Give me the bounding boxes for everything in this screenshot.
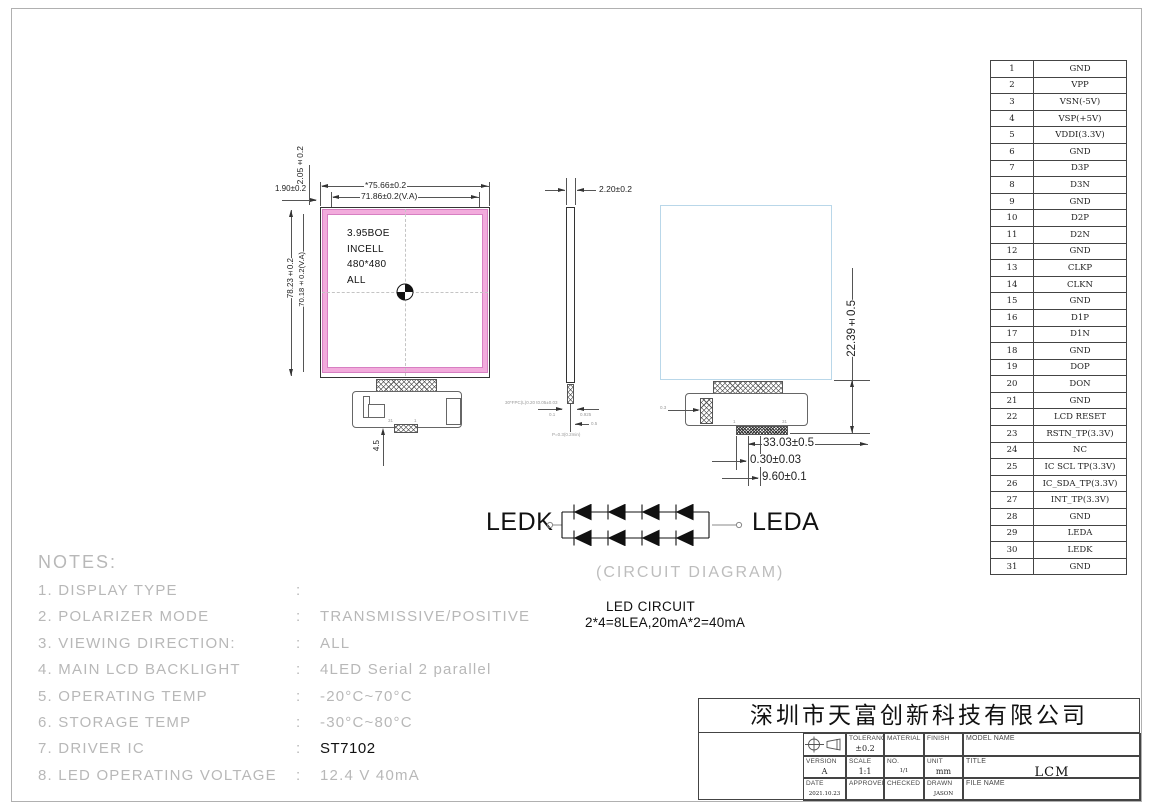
pin-name: GND bbox=[1034, 193, 1127, 210]
pin-row: 24NC bbox=[991, 442, 1127, 459]
note-label: POLARIZER MODE bbox=[58, 608, 209, 625]
pin-name: INT_TP(3.3V) bbox=[1034, 492, 1127, 509]
dim-small: 0.1 bbox=[549, 412, 555, 417]
note-number: 3. bbox=[38, 635, 53, 652]
ext-line bbox=[575, 178, 576, 205]
side-view-outline bbox=[566, 207, 575, 383]
pin-number: 18 bbox=[991, 343, 1034, 360]
note-label: DISPLAY TYPE bbox=[58, 582, 177, 599]
pin-name: LCD RESET bbox=[1034, 409, 1127, 426]
pin-number: 31 bbox=[991, 558, 1034, 575]
dim-outer-width: *75.66±0.2 bbox=[364, 181, 407, 191]
dim-arrow bbox=[752, 476, 759, 480]
no-value: 1/1 bbox=[885, 765, 923, 777]
pin-name: CLKP bbox=[1034, 260, 1127, 277]
pin-number: 2 bbox=[991, 77, 1034, 94]
note-number: 6. bbox=[38, 714, 53, 731]
fpc-pitch-caption: P=0.3(0.2min) bbox=[552, 432, 580, 437]
dim-thickness: 2.20±0.2 bbox=[598, 185, 633, 195]
pin-number: 9 bbox=[991, 193, 1034, 210]
note-number: 4. bbox=[38, 661, 53, 678]
note-value: 4LED Serial 2 parallel bbox=[320, 657, 491, 683]
pin-name: D1P bbox=[1034, 309, 1127, 326]
projection-symbol-icon bbox=[804, 734, 845, 755]
pin-row: 21GND bbox=[991, 392, 1127, 409]
pin-row: 26IC_SDA_TP(3.3V) bbox=[991, 475, 1127, 492]
pin-name: VSN(-5V) bbox=[1034, 94, 1127, 111]
pin-name: D2P bbox=[1034, 210, 1127, 227]
pin-number: 7 bbox=[991, 160, 1034, 177]
note-value: ST7102 bbox=[320, 736, 376, 762]
dim-side-margin: 1.90±0.2 bbox=[274, 184, 307, 193]
notes-heading: NOTES: bbox=[38, 552, 117, 573]
pin-row: 16D1P bbox=[991, 309, 1127, 326]
pin-number: 22 bbox=[991, 409, 1034, 426]
pin-name: D3N bbox=[1034, 177, 1127, 194]
dim-arrow bbox=[289, 369, 293, 376]
dim-conn-width: 9.60±0.1 bbox=[761, 471, 808, 484]
note-value: -20°C~70°C bbox=[320, 684, 413, 710]
pin-row: 22LCD RESET bbox=[991, 409, 1127, 426]
dim-pitch: 0.30±0.03 bbox=[749, 454, 802, 467]
pin-number: 12 bbox=[991, 243, 1034, 260]
note-number: 8. bbox=[38, 767, 53, 784]
pin-row: 2VPP bbox=[991, 77, 1127, 94]
dim-arrow bbox=[850, 426, 854, 433]
pin-number: 30 bbox=[991, 542, 1034, 559]
pin-number: 20 bbox=[991, 376, 1034, 393]
pin-row: 12GND bbox=[991, 243, 1127, 260]
note-item: 3. VIEWING DIRECTION: : ALL bbox=[38, 631, 598, 657]
note-number: 2. bbox=[38, 608, 53, 625]
dim-arrow bbox=[740, 459, 747, 463]
note-item: 4. MAIN LCD BACKLIGHT : 4LED Serial 2 pa… bbox=[38, 657, 598, 683]
pin-name: NC bbox=[1034, 442, 1127, 459]
drawn-value: JASON bbox=[925, 787, 962, 800]
pin-name: LEDK bbox=[1034, 542, 1127, 559]
note-item: 6. STORAGE TEMP : -30°C~80°C bbox=[38, 710, 598, 736]
dim-arrow bbox=[321, 184, 328, 188]
pin-number: 14 bbox=[991, 276, 1034, 293]
note-colon: : bbox=[296, 631, 301, 657]
model-name-cell: MODEL NAME bbox=[963, 733, 1141, 756]
dim-arrow bbox=[556, 407, 563, 411]
led-circuit-diagram bbox=[546, 504, 746, 546]
ledk-label: LEDK bbox=[486, 508, 553, 537]
note-item: 5. OPERATING TEMP : -20°C~70°C bbox=[38, 684, 598, 710]
title-block: 深圳市天富创新科技有限公司 TOLERANCE ±0.2 MATERIAL FI… bbox=[698, 698, 1140, 800]
date-value: 2021.10.23 bbox=[804, 787, 845, 800]
pin-row: 10D2P bbox=[991, 210, 1127, 227]
dim-arrow bbox=[850, 380, 854, 387]
ext-line bbox=[736, 436, 737, 470]
note-value: TRANSMISSIVE/POSITIVE bbox=[320, 604, 530, 630]
pin-name: D1N bbox=[1034, 326, 1127, 343]
pin-name: GND bbox=[1034, 293, 1127, 310]
pin-name: GND bbox=[1034, 392, 1127, 409]
version-label: VERSION bbox=[804, 757, 845, 765]
pin-number: 10 bbox=[991, 210, 1034, 227]
pin-name: D2N bbox=[1034, 226, 1127, 243]
dim-arrow bbox=[471, 195, 478, 199]
scale-label: SCALE bbox=[847, 757, 883, 765]
title-label: TITLE bbox=[964, 757, 1140, 765]
title-cell: TITLE LCM bbox=[963, 756, 1141, 778]
projection-symbol-cell bbox=[803, 733, 846, 756]
note-item: 8. LED OPERATING VOLTAGE : 12.4 V 40mA bbox=[38, 763, 598, 789]
ext-line bbox=[489, 182, 490, 206]
note-colon: : bbox=[296, 736, 301, 762]
dim-fpc-drop: 22.39±0.5 bbox=[845, 300, 860, 357]
dim-va-width: 71.86±0.2(V.A) bbox=[360, 192, 418, 202]
unit-label: UNIT bbox=[925, 757, 962, 765]
checked-cell: CHECKED bbox=[884, 778, 924, 801]
scale-cell: SCALE 1:1 bbox=[846, 756, 884, 778]
pin-row: 23RSTN_TP(3.3V) bbox=[991, 426, 1127, 443]
pin-number: 3 bbox=[991, 94, 1034, 111]
note-label: LED OPERATING VOLTAGE bbox=[58, 767, 277, 784]
note-item: 7. DRIVER IC : ST7102 bbox=[38, 736, 598, 762]
panel-spec-line: 480*480 bbox=[347, 257, 390, 273]
pin-number: 25 bbox=[991, 459, 1034, 476]
fpc-component bbox=[368, 404, 385, 418]
pin-row: 17D1N bbox=[991, 326, 1127, 343]
finish-cell: FINISH bbox=[924, 733, 963, 756]
dim-va-height: 70.18±0.2(V.A) bbox=[297, 252, 308, 307]
pin-number: 29 bbox=[991, 525, 1034, 542]
pin-row: 15GND bbox=[991, 293, 1127, 310]
note-item: 1. DISPLAY TYPE : bbox=[38, 578, 598, 604]
dim-top-margin: 2.05±0.2 bbox=[295, 146, 307, 184]
note-label: DRIVER IC bbox=[58, 740, 145, 757]
back-connector bbox=[736, 426, 788, 435]
pin-row: 6GND bbox=[991, 143, 1127, 160]
dim-arrow bbox=[577, 407, 584, 411]
pin-mark: 1 bbox=[414, 418, 417, 423]
pin-name: CLKN bbox=[1034, 276, 1127, 293]
pin-number: 28 bbox=[991, 509, 1034, 526]
led-circuit-title: LED CIRCUIT bbox=[606, 599, 695, 614]
dim-arrow bbox=[481, 184, 488, 188]
led-circuit-spec: 2*4=8LEA,20mA*2=40mA bbox=[585, 615, 745, 630]
pin-number: 21 bbox=[991, 392, 1034, 409]
note-value: 12.4 V 40mA bbox=[320, 763, 420, 789]
drawing-sheet: 3.95BOE INCELL 480*480 ALL 31 1 *75.66±0… bbox=[0, 0, 1152, 810]
pin-row: 3VSN(-5V) bbox=[991, 94, 1127, 111]
note-number: 1. bbox=[38, 582, 53, 599]
dim-outer-height: 78.23±0.2 bbox=[285, 258, 296, 298]
panel-spec-line: INCELL bbox=[347, 242, 390, 258]
pin-name: GND bbox=[1034, 143, 1127, 160]
dim-arrow bbox=[310, 198, 317, 202]
dim-fpc-offset: 4.5 bbox=[371, 440, 382, 451]
tolerance-label: TOLERANCE bbox=[847, 734, 883, 742]
pin-name: VPP bbox=[1034, 77, 1127, 94]
dim-fpc-width: 33.03±0.5 bbox=[762, 437, 815, 450]
pin-name: LEDA bbox=[1034, 525, 1127, 542]
pin-name: IC_SDA_TP(3.3V) bbox=[1034, 475, 1127, 492]
title-value: LCM bbox=[964, 765, 1140, 778]
panel-spec-line: 3.95BOE bbox=[347, 226, 390, 242]
back-stiffener bbox=[713, 381, 783, 394]
material-label: MATERIAL bbox=[885, 734, 923, 742]
note-label: OPERATING TEMP bbox=[58, 688, 208, 705]
file-name-label: FILE NAME bbox=[964, 779, 1140, 787]
pin-row: 29LEDA bbox=[991, 525, 1127, 542]
file-name-cell: FILE NAME bbox=[963, 778, 1141, 801]
ext-line bbox=[479, 192, 480, 207]
pin-number: 27 bbox=[991, 492, 1034, 509]
back-view-outline bbox=[660, 205, 832, 380]
version-value: A bbox=[804, 765, 845, 777]
pin-name: DOP bbox=[1034, 359, 1127, 376]
note-value: ALL bbox=[320, 631, 350, 657]
ext-line bbox=[790, 433, 870, 434]
dim-arrow bbox=[575, 422, 582, 426]
note-colon: : bbox=[296, 578, 301, 604]
note-colon: : bbox=[296, 657, 301, 683]
pin-table: 1GND2VPP3VSN(-5V)4VSP(+5V)5VDDI(3.3V)6GN… bbox=[990, 60, 1127, 575]
note-colon: : bbox=[296, 604, 301, 630]
pin-number: 8 bbox=[991, 177, 1034, 194]
side-fpc-fold bbox=[567, 384, 574, 404]
fpc-stiffener bbox=[376, 379, 437, 392]
pin-row: 1GND bbox=[991, 61, 1127, 78]
center-mark-icon bbox=[396, 283, 414, 301]
pin-row: 18GND bbox=[991, 343, 1127, 360]
pin-name: VDDI(3.3V) bbox=[1034, 127, 1127, 144]
checked-label: CHECKED bbox=[885, 779, 923, 787]
note-colon: : bbox=[296, 763, 301, 789]
pin-row: 14CLKN bbox=[991, 276, 1127, 293]
pin-row: 19DOP bbox=[991, 359, 1127, 376]
dim-arrow bbox=[748, 442, 755, 446]
pin-name: GND bbox=[1034, 243, 1127, 260]
leda-label: LEDA bbox=[752, 508, 819, 537]
unit-value: mm bbox=[925, 765, 962, 777]
version-cell: VERSION A bbox=[803, 756, 846, 778]
dim-small: 0.5 bbox=[591, 421, 597, 426]
note-value: -30°C~80°C bbox=[320, 710, 413, 736]
pin-name: GND bbox=[1034, 61, 1127, 78]
pin-mark: 1 bbox=[733, 419, 736, 424]
pin-row: 5VDDI(3.3V) bbox=[991, 127, 1127, 144]
note-number: 7. bbox=[38, 740, 53, 757]
pin-number: 15 bbox=[991, 293, 1034, 310]
no-label: NO. bbox=[885, 757, 923, 765]
pin-name: VSP(+5V) bbox=[1034, 110, 1127, 127]
date-cell: DATE 2021.10.23 bbox=[803, 778, 846, 801]
drawn-label: DRAWN bbox=[925, 779, 962, 787]
dim-arrow bbox=[381, 428, 385, 435]
pin-number: 4 bbox=[991, 110, 1034, 127]
notes-list: 1. DISPLAY TYPE : 2. POLARIZER MODE : TR… bbox=[38, 578, 598, 789]
pin-row: 20DON bbox=[991, 376, 1127, 393]
pin-row: 7D3P bbox=[991, 160, 1127, 177]
pin-name: GND bbox=[1034, 509, 1127, 526]
unit-cell: UNIT mm bbox=[924, 756, 963, 778]
model-name-label: MODEL NAME bbox=[964, 734, 1140, 742]
pin-row: 27INT_TP(3.3V) bbox=[991, 492, 1127, 509]
dim-arrow bbox=[693, 408, 700, 412]
pin-number: 23 bbox=[991, 426, 1034, 443]
note-label: VIEWING DIRECTION: bbox=[58, 635, 235, 652]
company-name: 深圳市天富创新科技有限公司 bbox=[699, 699, 1139, 733]
tolerance-cell: TOLERANCE ±0.2 bbox=[846, 733, 884, 756]
pin-row: 13CLKP bbox=[991, 260, 1127, 277]
pin-number: 1 bbox=[991, 61, 1034, 78]
pin-row: 25IC SCL TP(3.3V) bbox=[991, 459, 1127, 476]
drawn-cell: DRAWN JASON bbox=[924, 778, 963, 801]
pin-name: DON bbox=[1034, 376, 1127, 393]
pin-row: 30LEDK bbox=[991, 542, 1127, 559]
pin-number: 6 bbox=[991, 143, 1034, 160]
approved-label: APPROVED bbox=[847, 779, 883, 787]
pin-name: GND bbox=[1034, 343, 1127, 360]
pin-row: 9GND bbox=[991, 193, 1127, 210]
circuit-diagram-caption: (CIRCUIT DIAGRAM) bbox=[596, 564, 784, 582]
back-fpc-patch bbox=[700, 398, 713, 424]
dim-arrow bbox=[577, 188, 584, 192]
finish-label: FINISH bbox=[925, 734, 962, 742]
pin-number: 16 bbox=[991, 309, 1034, 326]
note-colon: : bbox=[296, 710, 301, 736]
material-cell: MATERIAL bbox=[884, 733, 924, 756]
fpc-note: 30*FPC(L)0.20 t0.05±0.03 bbox=[505, 400, 558, 405]
pin-row: 11D2N bbox=[991, 226, 1127, 243]
pin-number: 19 bbox=[991, 359, 1034, 376]
dim-small: 0.3 bbox=[660, 405, 666, 410]
pin-name: GND bbox=[1034, 558, 1127, 575]
tolerance-value: ±0.2 bbox=[847, 742, 883, 755]
dim-arrow bbox=[332, 195, 339, 199]
pin-number: 26 bbox=[991, 475, 1034, 492]
pin-number: 11 bbox=[991, 226, 1034, 243]
pin-mark: 31 bbox=[782, 419, 787, 424]
pin-name: IC SCL TP(3.3V) bbox=[1034, 459, 1127, 476]
dim-arrow bbox=[289, 210, 293, 217]
pin-mark: 31 bbox=[388, 418, 393, 423]
pin-row: 31GND bbox=[991, 558, 1127, 575]
panel-spec-line: ALL bbox=[347, 273, 390, 289]
dim-arrow bbox=[558, 188, 565, 192]
pin-name: D3P bbox=[1034, 160, 1127, 177]
pin-row: 8D3N bbox=[991, 177, 1127, 194]
fpc-component bbox=[446, 398, 461, 425]
note-number: 5. bbox=[38, 688, 53, 705]
pin-row: 28GND bbox=[991, 509, 1127, 526]
fpc-connector bbox=[394, 424, 418, 433]
pin-number: 13 bbox=[991, 260, 1034, 277]
dim-arrow bbox=[860, 442, 867, 446]
dim-line bbox=[383, 434, 384, 466]
approved-cell: APPROVED bbox=[846, 778, 884, 801]
panel-spec-label: 3.95BOE INCELL 480*480 ALL bbox=[347, 226, 390, 288]
note-label: STORAGE TEMP bbox=[58, 714, 191, 731]
pin-name: RSTN_TP(3.3V) bbox=[1034, 426, 1127, 443]
pin-number: 17 bbox=[991, 326, 1034, 343]
scale-value: 1:1 bbox=[847, 765, 883, 777]
note-label: MAIN LCD BACKLIGHT bbox=[58, 661, 240, 678]
pin-number: 5 bbox=[991, 127, 1034, 144]
dim-small: 0.925 bbox=[580, 412, 591, 417]
note-colon: : bbox=[296, 684, 301, 710]
ext-line bbox=[566, 178, 567, 205]
pin-row: 4VSP(+5V) bbox=[991, 110, 1127, 127]
no-cell: NO. 1/1 bbox=[884, 756, 924, 778]
date-label: DATE bbox=[804, 779, 845, 787]
note-item: 2. POLARIZER MODE : TRANSMISSIVE/POSITIV… bbox=[38, 604, 598, 630]
pin-number: 24 bbox=[991, 442, 1034, 459]
